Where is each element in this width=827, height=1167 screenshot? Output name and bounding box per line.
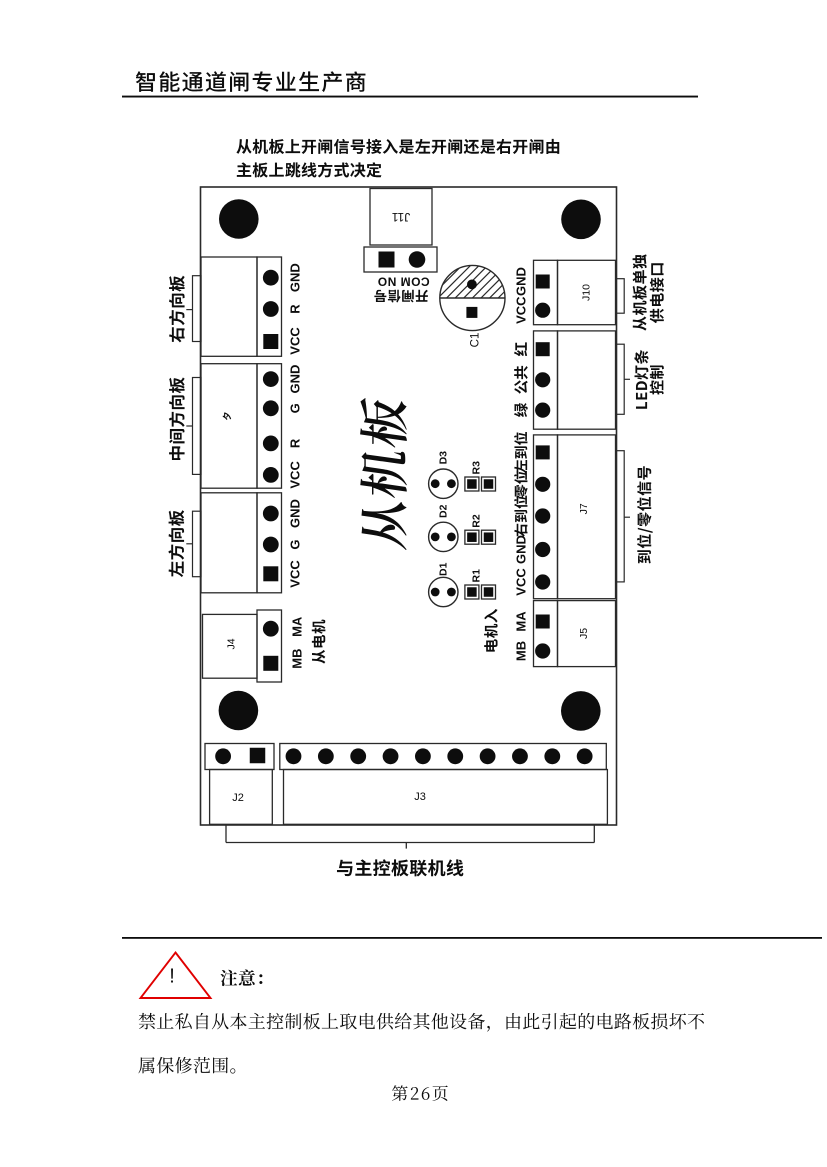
- svg-text:COM NO: COM NO: [377, 274, 429, 288]
- svg-text:GND: GND: [514, 267, 529, 296]
- svg-text:MB: MB: [514, 641, 529, 661]
- svg-text:J11: J11: [391, 210, 410, 224]
- svg-text:GND: GND: [514, 535, 529, 564]
- svg-text:VCC: VCC: [288, 461, 303, 489]
- svg-text:GND: GND: [288, 263, 303, 292]
- svg-text:GND: GND: [288, 365, 303, 394]
- svg-text:R3: R3: [470, 461, 482, 475]
- svg-text:D2: D2: [438, 504, 450, 518]
- svg-text:R: R: [288, 438, 303, 448]
- svg-text:J3: J3: [414, 791, 426, 803]
- svg-text:R2: R2: [470, 514, 482, 528]
- svg-text:J7: J7: [578, 503, 590, 514]
- svg-text:D3: D3: [438, 451, 450, 465]
- svg-text:MB: MB: [290, 648, 305, 668]
- svg-text:VCC: VCC: [514, 296, 529, 324]
- svg-text:J2: J2: [232, 792, 244, 804]
- svg-text:D1: D1: [438, 562, 450, 576]
- svg-text:MA: MA: [290, 616, 305, 637]
- svg-text:MA: MA: [514, 611, 529, 632]
- svg-text:J10: J10: [580, 284, 592, 301]
- svg-text:R1: R1: [470, 569, 482, 583]
- svg-text:J4: J4: [226, 638, 238, 649]
- svg-text:G: G: [288, 539, 303, 549]
- svg-text:C1: C1: [470, 333, 482, 348]
- svg-text:J5: J5: [578, 628, 590, 639]
- svg-text:GND: GND: [288, 499, 303, 528]
- svg-text:!: !: [169, 966, 175, 988]
- svg-text:G: G: [288, 403, 303, 413]
- svg-text:R: R: [288, 304, 303, 314]
- svg-text:VCC: VCC: [288, 327, 303, 355]
- svg-text:VCC: VCC: [514, 568, 529, 596]
- svg-text:VCC: VCC: [288, 560, 303, 588]
